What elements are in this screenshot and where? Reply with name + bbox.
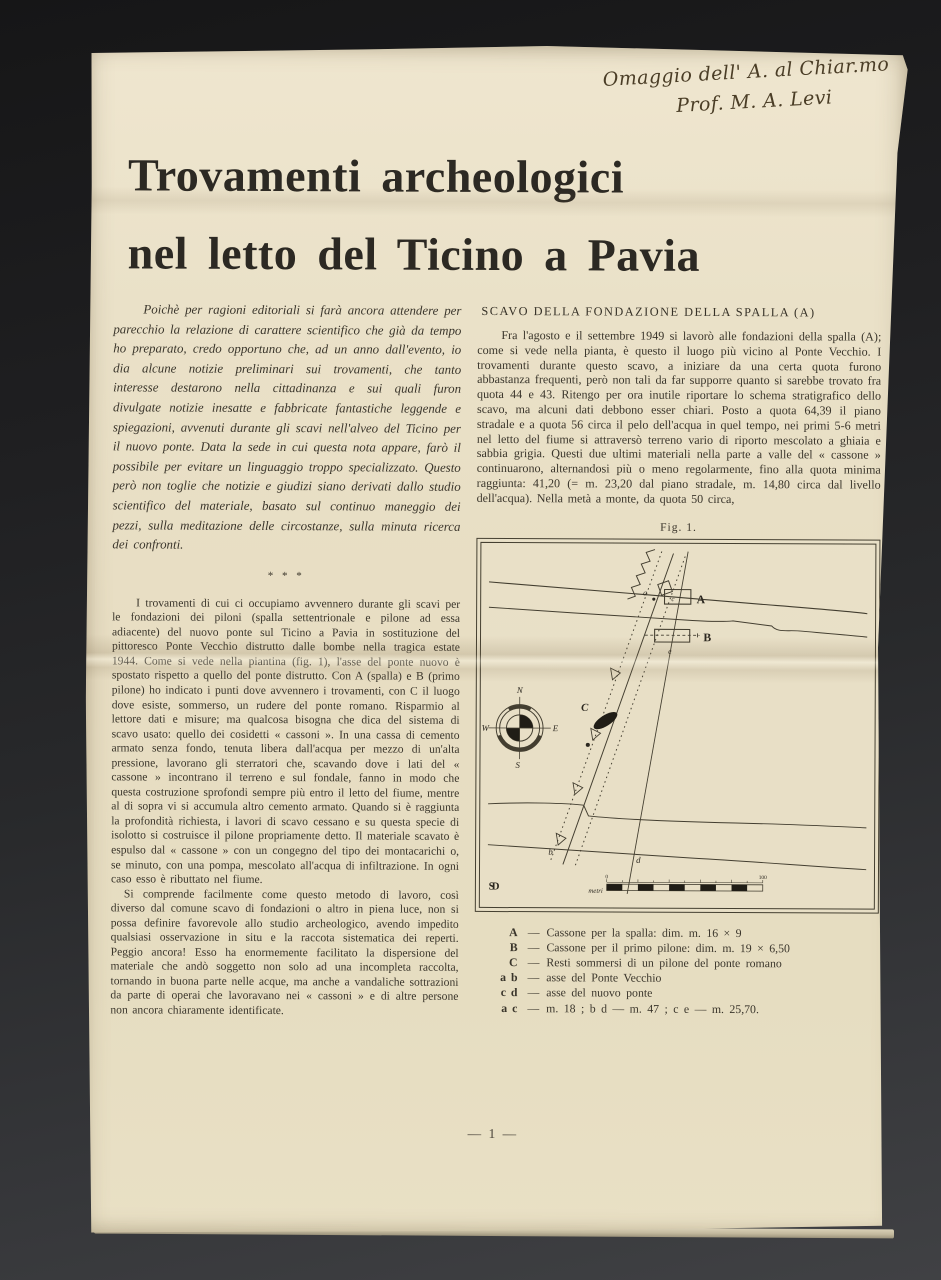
- label-e: e: [668, 646, 672, 655]
- label-c: c: [671, 596, 674, 603]
- title-line-1: Trovamenti archeologici: [128, 136, 701, 216]
- figure-legend: A — Cassone per la spalla: dim. m. 16 × …: [480, 925, 878, 1018]
- legend-row: C — Resti sommersi di un pilone del pont…: [481, 955, 879, 972]
- compass-rose: N E S W: [481, 684, 559, 769]
- right-column: SCAVO DELLA FONDAZIONE DELLA SPALLA (A) …: [474, 302, 881, 1021]
- paper-page: Omaggio dell' A. al Chiar.mo Prof. M. A.…: [81, 42, 908, 1238]
- compass-west-label: W: [482, 722, 490, 732]
- legend-key: C: [481, 955, 519, 970]
- legend-text: Cassone per la spalla: dim. m. 16 × 9: [546, 925, 741, 941]
- legend-dash: —: [519, 940, 547, 955]
- legend-text: asse del nuovo ponte: [546, 986, 652, 1002]
- intro-paragraph: Poichè per ragioni editoriali si farà an…: [112, 300, 461, 556]
- section-separator: * * *: [112, 569, 460, 583]
- legend-dash: —: [519, 955, 547, 970]
- figure-frame: A a c B e: [475, 537, 881, 913]
- map-svg: A a c B e: [480, 543, 876, 909]
- label-A: A: [697, 593, 706, 606]
- legend-row: B — Cassone per il primo pilone: dim. m.…: [481, 940, 879, 957]
- cartographer-monogram: SD: [489, 880, 500, 892]
- legend-dash: —: [518, 1001, 546, 1016]
- label-B: B: [703, 631, 711, 644]
- label-d: d: [636, 854, 641, 864]
- legend-key: a b: [480, 970, 518, 985]
- page-number: — 1 —: [82, 1124, 904, 1144]
- legend-text: asse del Ponte Vecchio: [546, 970, 661, 986]
- point-a-dot: [652, 597, 655, 600]
- label-a: a: [643, 588, 647, 597]
- compass-south-label: S: [516, 759, 521, 769]
- body-paragraph-right: Fra l'agosto e il settembre 1949 si lavo…: [477, 328, 882, 507]
- legend-row: A — Cassone per la spalla: dim. m. 16 × …: [481, 925, 879, 942]
- legend-text: m. 18 ; b d — m. 47 ; c e — m. 25,70.: [546, 1001, 759, 1017]
- legend-text: Resti sommersi di un pilone del ponte ro…: [546, 955, 781, 971]
- figure-caption: Fig. 1.: [476, 520, 880, 534]
- title-line-2: nel letto del Ticino a Pavia: [128, 214, 701, 294]
- body-paragraph-1: I trovamenti di cui ci occupiamo avvenne…: [111, 596, 460, 888]
- label-b: b: [548, 846, 553, 856]
- legend-key: a c: [480, 1001, 518, 1016]
- scale-unit-label: metri: [588, 887, 603, 894]
- article-title: Trovamenti archeologici nel letto del Ti…: [128, 136, 701, 294]
- legend-dash: —: [518, 970, 546, 985]
- cassone-b: B e: [645, 629, 712, 656]
- left-column: Poichè per ragioni editoriali si farà an…: [110, 300, 461, 1019]
- legend-text: Cassone per il primo pilone: dim. m. 19 …: [546, 940, 790, 956]
- legend-key: c d: [480, 985, 518, 1000]
- figure-map: A a c B e: [479, 541, 877, 909]
- new-bridge-axis: [627, 551, 688, 894]
- axis-marker-dot: [586, 742, 590, 746]
- handwritten-dedication: Omaggio dell' A. al Chiar.mo Prof. M. A.…: [602, 49, 892, 125]
- photo-background: Omaggio dell' A. al Chiar.mo Prof. M. A.…: [0, 0, 941, 1280]
- compass-north-label: N: [516, 685, 524, 695]
- body-paragraph-2: Si comprende facilmente come questo meto…: [110, 887, 459, 1019]
- roman-pier-c: C: [581, 701, 620, 732]
- legend-row: c d — asse del nuovo ponte: [480, 985, 878, 1002]
- article-columns: Poichè per ragioni editoriali si farà an…: [110, 300, 881, 1021]
- section-heading: SCAVO DELLA FONDAZIONE DELLA SPALLA (A): [481, 304, 881, 321]
- legend-row: a b — asse del Ponte Vecchio: [480, 970, 878, 987]
- legend-row: a c — m. 18 ; b d — m. 47 ; c e — m. 25,…: [480, 1001, 878, 1018]
- compass-east-label: E: [552, 723, 559, 733]
- cassone-a: A a c: [643, 588, 706, 606]
- label-C: C: [581, 701, 589, 713]
- scale-bar: metri 0 100: [588, 874, 767, 895]
- legend-dash: —: [519, 925, 547, 940]
- legend-dash: —: [518, 985, 546, 1000]
- legend-key: A: [481, 925, 519, 940]
- legend-key: B: [481, 940, 519, 955]
- bottom-shoreline: b d: [488, 802, 867, 869]
- figure-block: Fig. 1.: [474, 520, 880, 1017]
